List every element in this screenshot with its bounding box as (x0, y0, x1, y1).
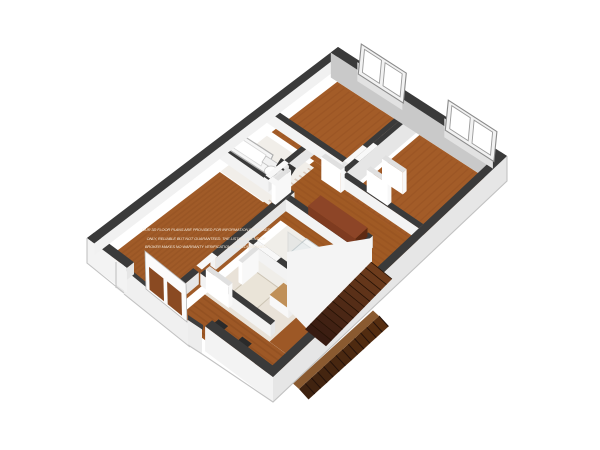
svg-text:ONLY, RELIABLE BUT NOT GUARANT: ONLY, RELIABLE BUT NOT GUARANTEED. THE L… (147, 236, 266, 241)
svg-text:OUR 3D FLOOR PLANS ARE PROVIDE: OUR 3D FLOOR PLANS ARE PROVIDED FOR INFO… (142, 227, 270, 232)
svg-text:BROKER MAKES NO WARRANTY VERIF: BROKER MAKES NO WARRANTY VERIFICATION IS… (145, 244, 267, 249)
